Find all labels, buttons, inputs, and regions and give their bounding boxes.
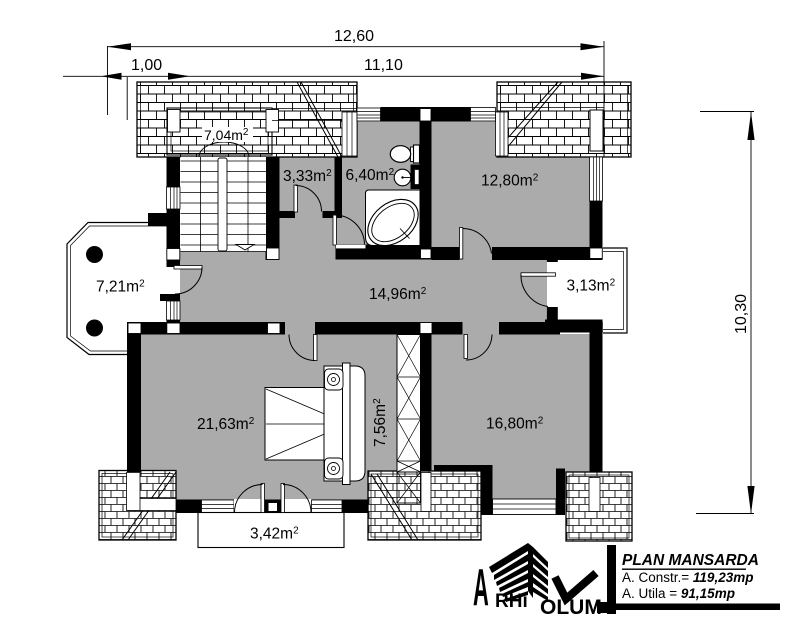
- svg-text:6,40m2: 6,40m2: [346, 167, 395, 184]
- svg-text:3,33m2: 3,33m2: [283, 168, 332, 185]
- svg-text:A: A: [473, 559, 489, 616]
- svg-text:OLUM: OLUM: [540, 596, 602, 619]
- svg-text:12,60: 12,60: [334, 28, 374, 45]
- svg-text:16,80m2: 16,80m2: [486, 416, 544, 433]
- svg-text:21,63m2: 21,63m2: [197, 416, 255, 433]
- svg-text:A. Utila = 91,15mp: A. Utila = 91,15mp: [622, 586, 735, 601]
- svg-text:1,00: 1,00: [131, 57, 162, 74]
- svg-text:12,80m2: 12,80m2: [481, 173, 539, 190]
- svg-text:RHi: RHi: [495, 591, 528, 612]
- svg-text:14,96m2: 14,96m2: [369, 286, 427, 303]
- svg-text:10,30: 10,30: [733, 294, 750, 334]
- svg-text:7,04m2: 7,04m2: [204, 127, 249, 143]
- svg-text:PLAN MANSARDA: PLAN MANSARDA: [622, 552, 759, 569]
- svg-text:11,10: 11,10: [364, 57, 403, 74]
- svg-text:7,56m2: 7,56m2: [372, 398, 389, 447]
- svg-text:7,21m2: 7,21m2: [96, 279, 145, 296]
- svg-text:3,42m2: 3,42m2: [250, 526, 299, 543]
- svg-text:3,13m2: 3,13m2: [567, 278, 616, 295]
- svg-text:A. Constr.= 119,23mp: A. Constr.= 119,23mp: [622, 570, 753, 585]
